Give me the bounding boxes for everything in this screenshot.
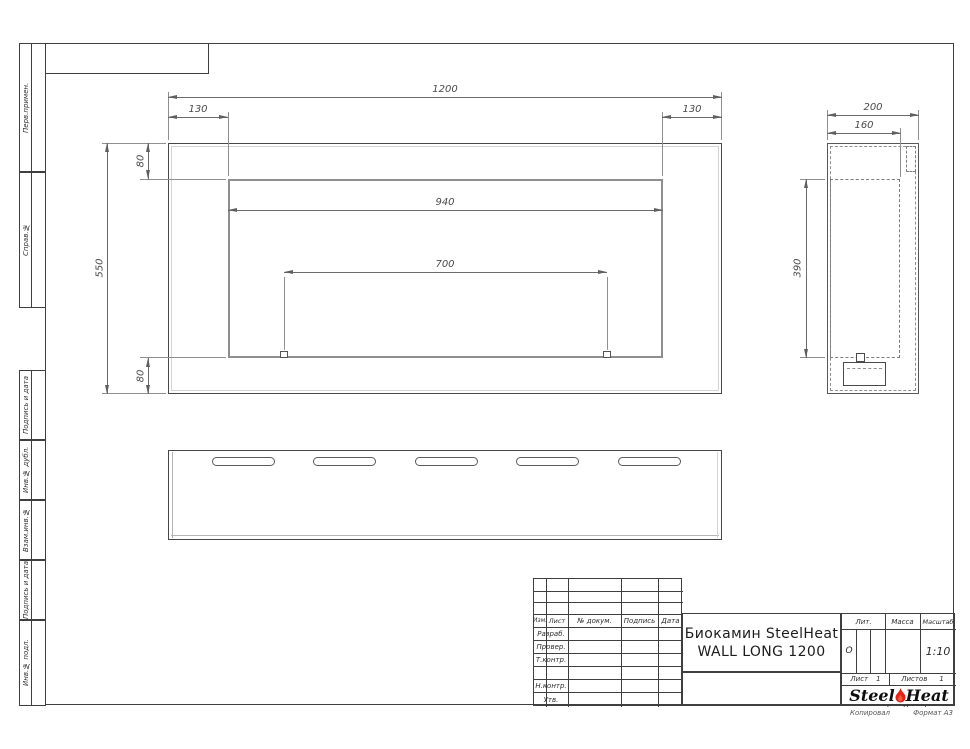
stamp-label: Подпись и дата [20,371,32,439]
dim-mount-span: 700 [435,259,454,270]
arrow-icon [168,95,177,99]
scale-value: 1:10 [920,629,956,673]
stamp-label: Перв.примен. [20,44,32,171]
header-sign: Подпись [621,614,658,627]
stamp-box-sprav-no: Справ.№ [19,172,46,308]
stamp-box-inv-dubl: Инв.№ дубл. [19,440,46,500]
title-block-right-section: Лит. Масса Масштаб О 1:10 Лист 1 Листов … [841,613,955,706]
extension-line [102,393,166,394]
stamp-label: Справ.№ [20,173,32,307]
dim-overall-width: 1200 [432,84,457,95]
arrow-icon [105,385,109,394]
side-view-bracket [906,146,916,172]
header-doc: № докум. [568,614,621,627]
dimension-line [284,272,607,273]
sheets-value: 1 [939,675,943,683]
arrow-icon [654,208,663,212]
dim-left-inset: 130 [188,104,207,115]
role-razrab: Разраб. [534,627,568,640]
extension-line [228,112,229,176]
doc-title-line2: WALL LONG 1200 [697,644,825,660]
arrow-icon [284,270,293,274]
burner-fuel-line [847,368,882,369]
drawing-sheet: Перв.примен. Справ.№ Подпись и дата Инв.… [0,0,970,749]
arrow-icon [598,270,607,274]
extension-line [140,357,226,358]
grid-line [534,602,683,603]
arrow-icon [827,113,836,117]
dim-inner-depth: 160 [854,120,873,131]
header-list: Лист [546,614,568,627]
dimension-line [827,133,901,134]
arrow-icon [827,131,836,135]
stamp-box-perv-primen: Перв.примен. [19,43,46,172]
sheet-cell: Лист 1 [842,673,889,685]
grid-line [856,629,857,673]
burner-box [843,362,886,386]
header-date: Дата [658,614,683,627]
grid-line [870,629,871,673]
doc-name-cell: Биокамин SteelHeat WALL LONG 1200 [682,613,841,672]
lit-label: Лит. [842,614,885,629]
stamp-label: Инв.№ дубл. [20,441,32,499]
stamp-box-vzam-inv: Взам.инв.№ [19,500,46,560]
footer-format: Формат А3 [908,708,958,718]
dim-top-inset: 80 [136,155,147,168]
arrow-icon [228,208,237,212]
dimension-line [827,115,919,116]
sheets-label: Листов [901,675,927,683]
arrow-icon [146,385,150,394]
dimension-line [168,97,722,98]
logo-word-steel: Steel [849,686,894,705]
stamp-box-podpis-data-2: Подпись и дата [19,560,46,620]
grid-line [534,591,683,592]
dimension-line [107,143,108,394]
dim-opening-width: 940 [435,197,454,208]
mount-tab-right [603,351,611,358]
scale-label: Масштаб [920,614,956,629]
role-utv: Утв. [534,692,568,707]
bottom-view-edge-line [717,452,718,538]
extension-line [607,277,608,348]
dimension-line [806,179,807,358]
vent-slot [313,457,376,466]
arrow-icon [219,115,228,119]
logo: Steel Heat [849,686,948,705]
vent-slot [516,457,579,466]
side-view-hidden-opening [830,179,900,358]
logo-word-heat: Heat [906,686,949,705]
header-izm: Изм. [534,614,546,627]
arrow-icon [146,143,150,152]
dim-opening-height: 390 [793,258,804,277]
arrow-icon [713,115,722,119]
stamp-label: Подпись и дата [20,561,32,619]
arrow-icon [168,115,177,119]
vent-slot [212,457,275,466]
dimension-line [228,210,663,211]
sheets-cell: Листов 1 [889,673,956,685]
arrow-icon [910,113,919,117]
top-left-stamp-box [45,43,209,74]
stamp-box-inv-podl: Инв.№ подл. [19,620,46,706]
role-blank [534,666,568,679]
arrow-icon [105,143,109,152]
extension-line [900,128,901,177]
vent-slot [618,457,681,466]
burner-tab [856,353,865,362]
sheet-label: Лист [850,675,868,683]
role-nkontr: Н.контр. [534,679,568,692]
grid-line [568,579,569,707]
extension-line [284,277,285,348]
logo-site: www.steelheat.ru [856,705,943,707]
doc-title-line1: Биокамин SteelHeat [685,626,838,642]
arrow-icon [146,358,150,367]
dim-right-inset: 130 [682,104,701,115]
dim-overall-height: 550 [95,258,106,277]
arrow-icon [713,95,722,99]
grid-line [621,579,622,707]
arrow-icon [804,179,808,188]
arrow-icon [146,170,150,179]
role-prover: Провер. [534,640,568,653]
arrow-icon [804,349,808,358]
lit-value: О [842,629,856,673]
footer-copied: Копировал [840,708,900,718]
mount-tab-left [280,351,288,358]
title-block-left-section: Изм. Лист № докум. Подпись Дата Разраб. … [533,578,682,706]
mass-value [885,629,920,673]
grid-line [658,579,659,707]
arrow-icon [662,115,671,119]
doc-designation-cell [682,672,841,706]
mass-label: Масса [885,614,920,629]
extension-line [662,112,663,176]
stamp-label: Взам.инв.№ [20,501,32,559]
stamp-label: Инв.№ подл. [20,621,32,705]
bottom-view-edge-line [172,452,173,538]
dim-bottom-inset: 80 [136,370,147,383]
extension-line [102,143,166,144]
vent-slot [415,457,478,466]
dim-depth: 200 [863,102,882,113]
arrow-icon [892,131,901,135]
extension-line [140,179,226,180]
role-tkontr: Т.контр. [534,653,568,666]
bottom-view-edge-line [171,535,719,536]
sheet-value: 1 [876,675,880,683]
stamp-box-podpis-data-1: Подпись и дата [19,370,46,440]
logo-cell: Steel Heat www.steelheat.ru [842,685,956,707]
